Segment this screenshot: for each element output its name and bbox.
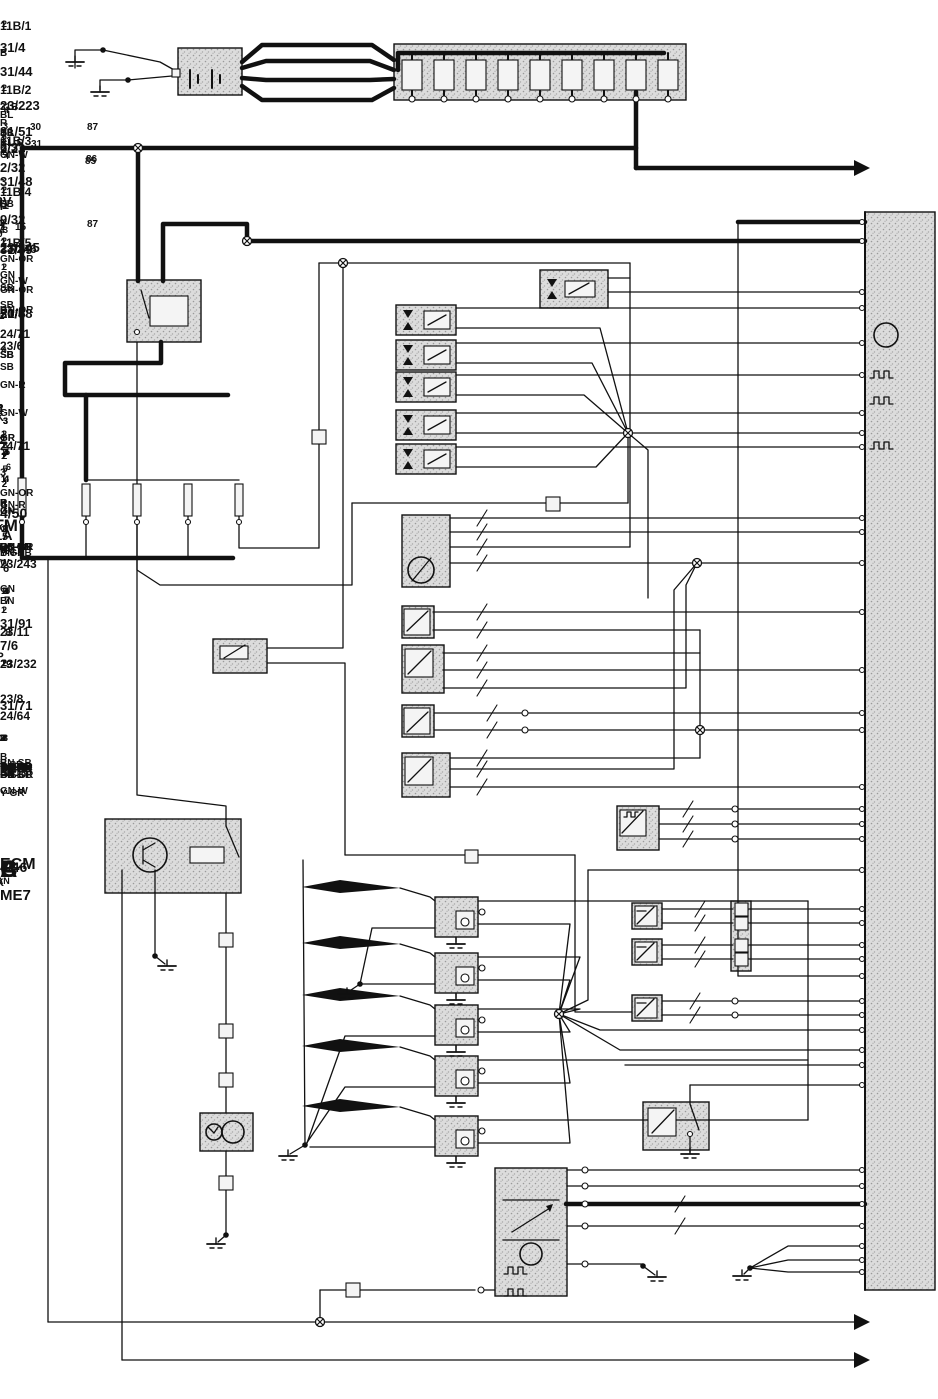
label-K-421: K <box>0 412 4 424</box>
label-SB-207: SB <box>0 199 14 210</box>
terminal-circle <box>860 921 865 926</box>
terminal-circle <box>860 1202 865 1207</box>
wire-thick <box>163 224 865 281</box>
terminal-circle <box>860 822 865 827</box>
pump-6-31 <box>200 1113 253 1151</box>
label-87-227: 87 <box>87 219 99 230</box>
terminal-circle <box>860 431 865 436</box>
wire <box>478 924 570 1014</box>
label-86-162: 86 <box>86 154 98 165</box>
terminal-circle <box>569 96 575 102</box>
terminal-circle <box>186 520 191 525</box>
terminal-circle <box>473 96 479 102</box>
inner-rect <box>565 281 595 297</box>
wire <box>155 893 165 964</box>
terminal-circle <box>461 918 469 926</box>
label-GN-W-284: GN-W <box>0 276 28 287</box>
terminal-circle <box>860 1028 865 1033</box>
label-15-230: 15 <box>15 222 27 233</box>
terminal-circle <box>582 1183 588 1189</box>
terminal-circle <box>479 965 485 971</box>
terminal-circle <box>860 1258 865 1263</box>
wire <box>400 1107 435 1120</box>
inner-rect <box>735 953 748 966</box>
inner-rect <box>498 60 518 90</box>
label-23/243-568: 23/243 <box>0 557 37 571</box>
wire <box>559 1014 865 1050</box>
terminal-circle <box>633 96 639 102</box>
terminal-circle <box>860 974 865 979</box>
junction-dot <box>223 1232 229 1238</box>
wire <box>75 50 176 71</box>
label-GN-W-158: GN-W <box>0 150 28 161</box>
filled-shape <box>302 936 400 949</box>
wire <box>443 563 697 688</box>
label-2/32-172: 2/32 <box>0 160 25 175</box>
label-87-130: 87 <box>87 122 99 133</box>
terminal-circle <box>409 96 415 102</box>
inner-rect <box>620 810 646 836</box>
wire <box>400 996 435 1009</box>
inner-rect <box>312 430 326 444</box>
inner-rect <box>402 60 422 90</box>
label-SB-370: SB <box>0 362 14 373</box>
label-Y-GR-796: Y-GR <box>0 788 25 799</box>
filled-shape <box>854 1314 870 1330</box>
inner-rect <box>404 708 430 734</box>
wire <box>628 433 648 598</box>
label-4-113: 4 <box>4 105 9 115</box>
inner-rect <box>219 1176 233 1190</box>
terminal-circle <box>479 1068 485 1074</box>
wire-thick <box>22 514 233 558</box>
terminal-circle <box>860 957 865 962</box>
label-GN-W-416: GN-W <box>0 408 28 419</box>
label-6-470: 6 <box>6 462 11 472</box>
terminal-circle <box>860 1244 865 1249</box>
junction-dot <box>640 1263 646 1269</box>
terminal-circle <box>860 943 865 948</box>
terminal-circle <box>860 373 865 378</box>
inner-rect <box>546 497 560 511</box>
terminal-circle <box>84 520 89 525</box>
inner-rect <box>626 60 646 90</box>
inner-rect <box>150 296 188 326</box>
terminal-circle <box>860 239 865 244</box>
wire <box>400 944 435 957</box>
label-BN-776: BN <box>0 768 14 779</box>
terminal-circle <box>860 1270 865 1275</box>
inner-rect <box>735 939 748 952</box>
inner-rect <box>190 847 224 863</box>
label-2-27: 2 <box>2 19 7 29</box>
wire <box>303 860 305 1145</box>
filled-shape <box>302 1099 400 1112</box>
inner-rect <box>172 69 180 77</box>
terminal-circle <box>582 1223 588 1229</box>
terminal-circle <box>688 1132 693 1137</box>
terminal-circle <box>860 868 865 873</box>
label-P-660: P <box>0 651 4 663</box>
label-2-91: 2 <box>2 83 7 93</box>
wire-thick <box>242 61 394 70</box>
label-31/91-628: 31/91 <box>0 616 33 631</box>
junction-dot <box>302 1142 308 1148</box>
label-1-482: 1 <box>1 474 6 484</box>
wire <box>137 342 226 819</box>
label-BL-OR-550: BL-OR <box>0 542 32 553</box>
terminal-circle <box>479 1128 485 1134</box>
label-31-147: 31 <box>31 139 43 150</box>
terminal-circle <box>860 220 865 225</box>
wire-thick <box>242 78 394 80</box>
inner-rect <box>658 60 678 90</box>
label-2-226: 2 <box>0 218 5 228</box>
wire <box>456 433 628 467</box>
terminal-circle <box>479 1017 485 1023</box>
inner-rect <box>562 60 582 90</box>
inner-rect <box>219 1024 233 1038</box>
junction-dot <box>125 77 131 83</box>
terminal-circle <box>665 96 671 102</box>
inner-rect <box>82 484 90 516</box>
label-K-886: K <box>0 877 4 889</box>
battery-1-1 <box>178 48 242 95</box>
wire <box>360 928 435 984</box>
wiring-diagram-canvas: 31/4BL31/44BL1/112V-+BBBB11A12345678923/… <box>0 0 938 1394</box>
filled-shape <box>302 880 400 893</box>
filled-shape <box>854 160 870 176</box>
inner-rect <box>133 484 141 516</box>
wire <box>575 855 632 1012</box>
inner-rect <box>346 1283 360 1297</box>
terminal-circle <box>582 1201 588 1207</box>
terminal-circle <box>479 909 485 915</box>
label-31/71-710: 31/71 <box>0 698 33 713</box>
wire <box>456 395 628 433</box>
terminal-circle <box>582 1167 588 1173</box>
terminal-circle <box>860 1184 865 1189</box>
wire <box>456 328 628 433</box>
inner-rect <box>466 60 486 90</box>
terminal-circle <box>237 520 242 525</box>
wire <box>267 663 345 855</box>
label-GN-R-388: GN-R <box>0 380 26 391</box>
terminal-circle <box>860 561 865 566</box>
wire <box>559 1014 865 1030</box>
terminal-circle <box>860 530 865 535</box>
inner-rect <box>219 1073 233 1087</box>
terminal-circle <box>732 998 738 1004</box>
terminal-circle <box>135 330 140 335</box>
terminal-circle <box>461 1137 469 1145</box>
terminal-circle <box>860 610 865 615</box>
wire <box>750 1260 865 1268</box>
label-31/51-136: 31/51 <box>0 124 33 139</box>
ecm-4-46 <box>865 212 935 1290</box>
terminal-circle <box>522 727 528 733</box>
throttle-module-4-50 <box>495 1168 567 1296</box>
wire-thick <box>65 342 228 395</box>
label-B-56: B <box>0 48 7 59</box>
wire <box>478 1014 570 1143</box>
terminal-circle <box>732 806 738 812</box>
terminal-circle <box>860 1013 865 1018</box>
terminal-circle <box>732 1012 738 1018</box>
terminal-circle <box>441 96 447 102</box>
inner-rect <box>465 850 478 863</box>
wire <box>456 363 628 433</box>
wiring-diagram-page: 31/4BL31/44BL1/112V-+BBBB11A12345678923/… <box>0 0 938 1394</box>
terminal-circle <box>860 907 865 912</box>
terminal-circle <box>860 341 865 346</box>
terminal-circle <box>860 711 865 716</box>
terminal-circle <box>860 999 865 1004</box>
label-24/71-338: 24/71 <box>0 327 30 341</box>
terminal-circle <box>860 1224 865 1229</box>
terminal-circle <box>860 290 865 295</box>
label-BN-604: BN <box>0 596 14 607</box>
terminal-circle <box>505 96 511 102</box>
inner-rect <box>735 903 748 916</box>
junction-dot <box>100 47 106 53</box>
inner-rect <box>594 60 614 90</box>
terminal-circle <box>601 96 607 102</box>
label-20/7-318: 20/7 <box>0 306 25 321</box>
terminal-circle <box>860 668 865 673</box>
label-31B-110: 31B <box>0 102 18 113</box>
label-31/44-76: 31/44 <box>0 64 33 79</box>
terminal-circle <box>860 516 865 521</box>
terminal-circle <box>860 1168 865 1173</box>
terminal-circle <box>860 728 865 733</box>
terminal-circle <box>732 821 738 827</box>
terminal-circle <box>522 710 528 716</box>
label-23/245-252: 23/245 <box>0 240 40 255</box>
terminal-circle <box>860 1063 865 1068</box>
inner-rect <box>530 60 550 90</box>
terminal-circle <box>461 974 469 982</box>
filled-shape <box>302 1039 400 1052</box>
inner-rect <box>184 484 192 516</box>
terminal-circle <box>860 1048 865 1053</box>
wire <box>137 503 352 585</box>
wire <box>478 1014 570 1083</box>
terminal-circle <box>461 1077 469 1085</box>
terminal-circle <box>461 1026 469 1034</box>
terminal-circle <box>537 96 543 102</box>
filled-shape <box>854 1352 870 1368</box>
terminal-circle <box>860 1083 865 1088</box>
wire-thick <box>242 86 394 100</box>
terminal-circle <box>732 836 738 842</box>
wire <box>239 524 319 548</box>
label-2-270: 2 <box>2 262 7 272</box>
wire <box>400 888 435 901</box>
label-5-594: 5 <box>5 586 10 596</box>
wire <box>267 263 343 648</box>
terminal-circle <box>478 1287 484 1293</box>
inner-rect <box>219 933 233 947</box>
label-31/48-186: 31/48 <box>0 174 33 189</box>
inner-rect <box>735 917 748 930</box>
wire <box>306 1087 435 1144</box>
wire <box>750 1268 865 1272</box>
terminal-circle <box>860 445 865 450</box>
terminal-circle <box>860 411 865 416</box>
terminal-circle <box>860 807 865 812</box>
junction-dot <box>152 953 158 959</box>
terminal-circle <box>582 1261 588 1267</box>
label-4-353: 4 <box>1 345 6 355</box>
terminal-circle <box>860 785 865 790</box>
label-2-741: 2 <box>2 733 7 743</box>
junction-dot <box>357 981 363 987</box>
terminal-circle <box>135 520 140 525</box>
inner-rect <box>434 60 454 90</box>
inner-rect <box>235 484 243 516</box>
wire <box>100 76 172 90</box>
junction-dot <box>747 1265 753 1271</box>
wire <box>400 1047 435 1060</box>
label-24/71-450: 24/71 <box>0 439 30 453</box>
label-ME7-900: ME7 <box>0 887 31 904</box>
wire <box>559 870 588 1014</box>
terminal-circle <box>860 306 865 311</box>
terminal-circle <box>860 837 865 842</box>
